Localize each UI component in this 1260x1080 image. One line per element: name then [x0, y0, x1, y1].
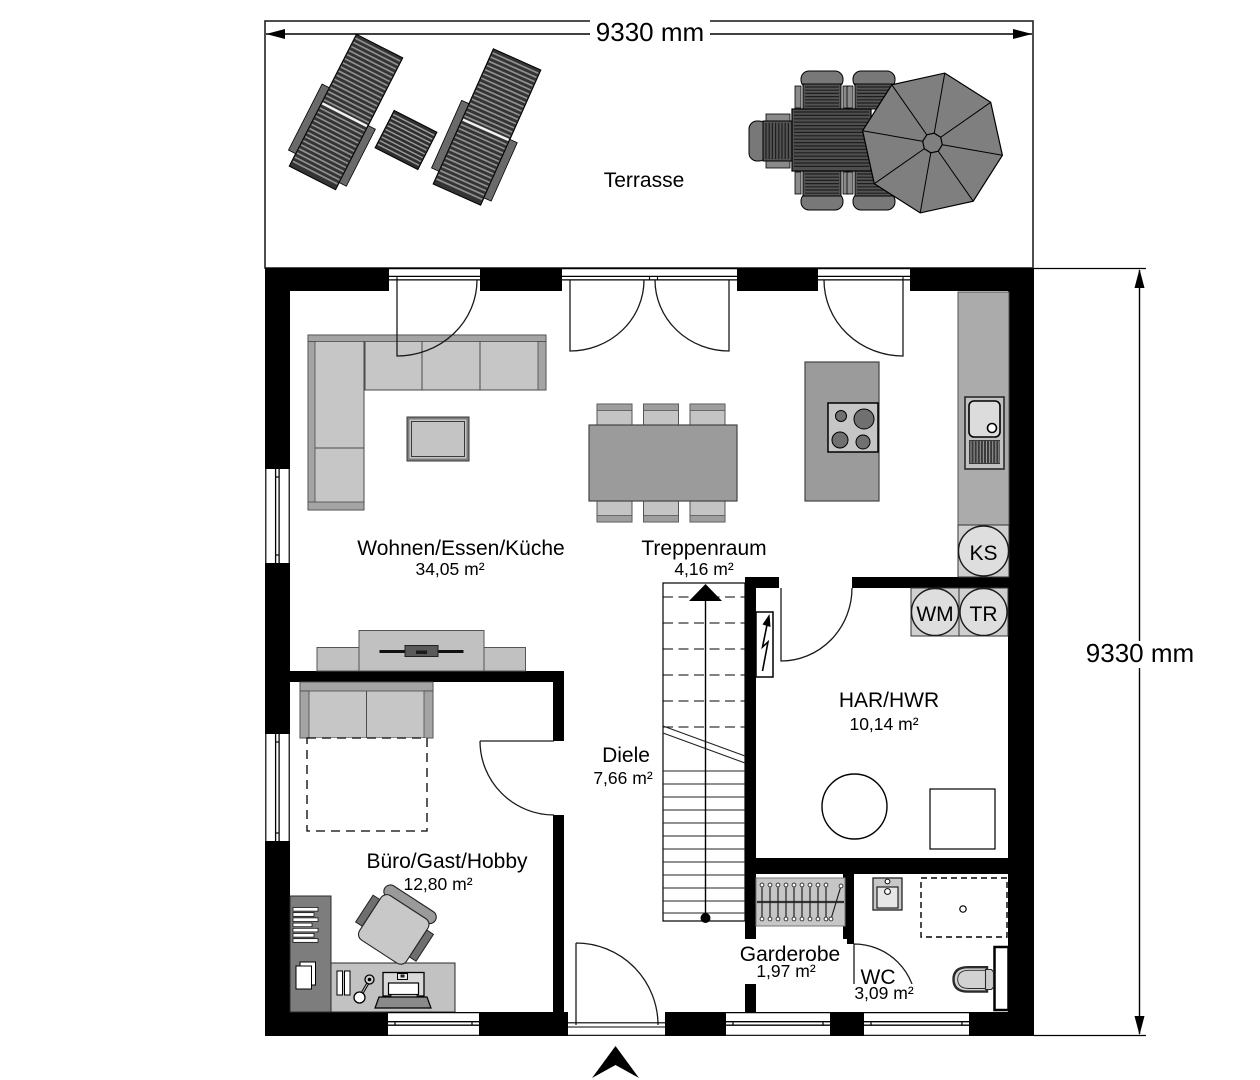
svg-text:TR: TR — [970, 603, 998, 626]
svg-text:12,80 m²: 12,80 m² — [403, 874, 472, 894]
svg-text:HAR/HWR: HAR/HWR — [839, 689, 939, 712]
svg-text:9330 mm: 9330 mm — [1086, 638, 1194, 668]
svg-text:WM: WM — [916, 603, 953, 626]
svg-text:4,16 m²: 4,16 m² — [674, 559, 733, 579]
svg-text:10,14 m²: 10,14 m² — [849, 714, 918, 734]
svg-text:Büro/Gast/Hobby: Büro/Gast/Hobby — [366, 850, 528, 873]
svg-text:7,66 m²: 7,66 m² — [593, 768, 652, 788]
svg-text:Diele: Diele — [602, 744, 650, 767]
svg-text:Terrasse: Terrasse — [604, 169, 685, 192]
svg-text:KS: KS — [969, 542, 997, 565]
svg-text:9330 mm: 9330 mm — [596, 17, 704, 47]
svg-text:Wohnen/Essen/Küche: Wohnen/Essen/Küche — [357, 537, 564, 560]
svg-text:Treppenraum: Treppenraum — [641, 537, 766, 560]
svg-text:34,05 m²: 34,05 m² — [415, 559, 484, 579]
svg-text:3,09 m²: 3,09 m² — [854, 983, 913, 1003]
svg-text:1,97 m²: 1,97 m² — [756, 961, 815, 981]
